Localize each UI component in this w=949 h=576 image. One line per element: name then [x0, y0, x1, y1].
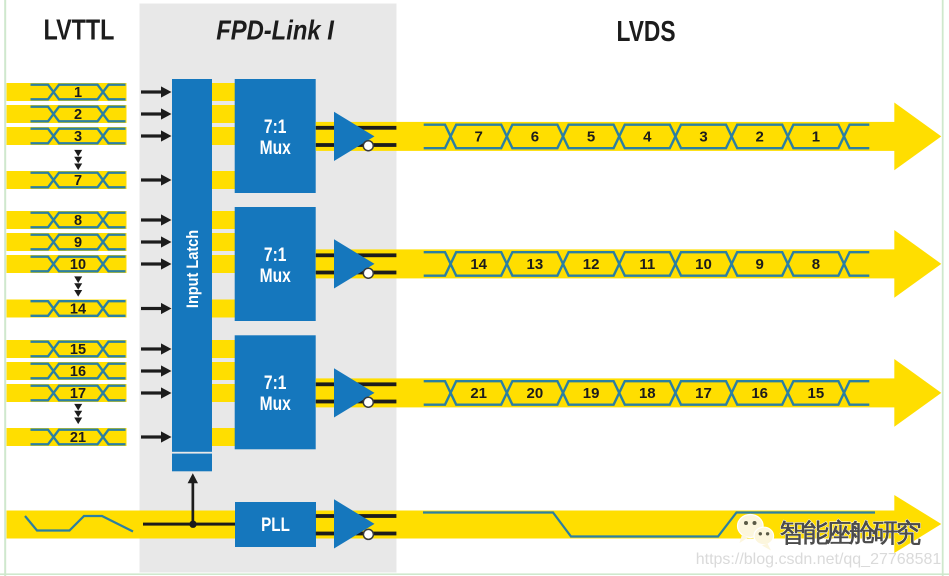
svg-text:12: 12 — [583, 256, 600, 273]
svg-text:2: 2 — [74, 107, 82, 123]
svg-text:13: 13 — [527, 256, 544, 273]
svg-text:FPD-Link I: FPD-Link I — [216, 14, 334, 46]
svg-text:8: 8 — [74, 213, 82, 229]
svg-text:11: 11 — [639, 256, 655, 273]
svg-text:21: 21 — [70, 430, 86, 446]
svg-text:17: 17 — [70, 386, 86, 402]
svg-text:21: 21 — [470, 385, 487, 402]
svg-text:1: 1 — [74, 85, 82, 101]
svg-text:14: 14 — [70, 302, 86, 318]
svg-text:LVDS: LVDS — [616, 17, 675, 48]
svg-text:Mux: Mux — [260, 392, 291, 414]
svg-text:19: 19 — [583, 385, 600, 402]
svg-text:LVTTL: LVTTL — [44, 13, 115, 46]
svg-text:Input Latch: Input Latch — [184, 230, 202, 308]
svg-text:16: 16 — [751, 385, 768, 402]
svg-text:7: 7 — [475, 129, 483, 146]
svg-text:17: 17 — [695, 385, 712, 402]
svg-text:7:1: 7:1 — [264, 371, 287, 393]
svg-text:7: 7 — [74, 173, 82, 189]
svg-text:Mux: Mux — [260, 264, 291, 286]
svg-text:5: 5 — [587, 129, 595, 146]
svg-text:https://blog.csdn.net/qq_27768: https://blog.csdn.net/qq_27768581 — [696, 551, 942, 568]
svg-text:6: 6 — [531, 129, 539, 146]
svg-text:14: 14 — [470, 256, 487, 273]
svg-text:2: 2 — [756, 129, 764, 146]
svg-text:10: 10 — [70, 257, 86, 273]
svg-text:18: 18 — [639, 385, 656, 402]
svg-text:9: 9 — [74, 235, 82, 251]
svg-text:PLL: PLL — [261, 513, 290, 535]
svg-text:20: 20 — [527, 385, 544, 402]
svg-text:7:1: 7:1 — [264, 243, 287, 265]
svg-text:8: 8 — [812, 256, 820, 273]
svg-text:Mux: Mux — [260, 136, 291, 158]
svg-text:3: 3 — [699, 129, 707, 146]
svg-text:4: 4 — [643, 129, 652, 146]
svg-text:3: 3 — [74, 129, 82, 145]
svg-text:15: 15 — [808, 385, 825, 402]
svg-text:10: 10 — [695, 256, 712, 273]
svg-text:7:1: 7:1 — [264, 115, 287, 137]
svg-text:9: 9 — [756, 256, 764, 273]
svg-text:1: 1 — [812, 129, 820, 146]
svg-text:16: 16 — [70, 364, 86, 380]
svg-text:15: 15 — [70, 342, 86, 358]
